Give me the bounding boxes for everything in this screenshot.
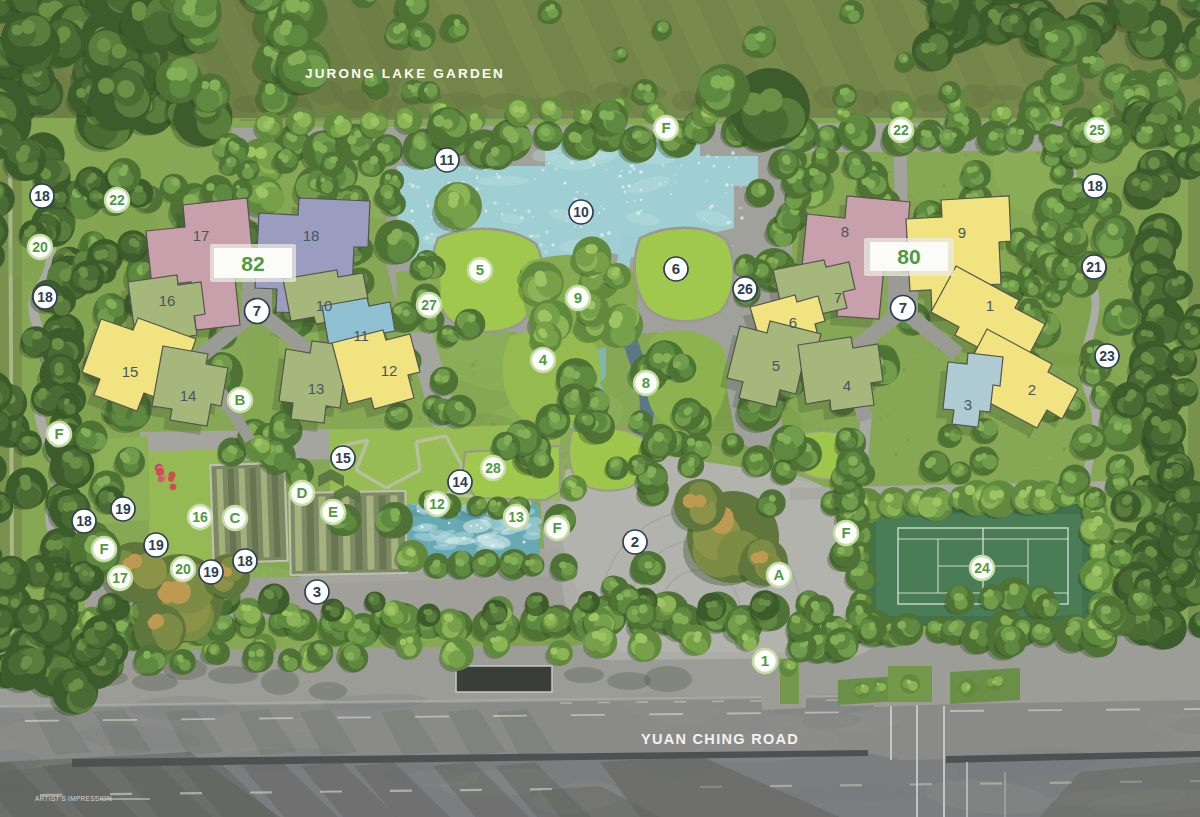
svg-text:15: 15 [122, 363, 139, 380]
svg-text:13: 13 [508, 509, 524, 525]
svg-text:10: 10 [573, 204, 589, 220]
svg-text:19: 19 [115, 501, 131, 517]
svg-text:16: 16 [159, 292, 176, 309]
svg-text:20: 20 [175, 561, 191, 577]
svg-text:11: 11 [440, 152, 455, 168]
svg-text:YUAN CHING ROAD: YUAN CHING ROAD [641, 731, 799, 747]
svg-text:4: 4 [843, 377, 851, 394]
svg-text:2: 2 [631, 533, 639, 550]
svg-text:B: B [235, 391, 246, 408]
svg-text:2: 2 [1028, 381, 1036, 398]
svg-text:F: F [552, 519, 561, 536]
svg-text:22: 22 [109, 192, 125, 208]
svg-text:19: 19 [148, 537, 164, 553]
svg-text:22: 22 [893, 122, 909, 138]
svg-text:9: 9 [574, 289, 582, 306]
svg-text:6: 6 [789, 314, 797, 331]
svg-text:18: 18 [237, 553, 253, 569]
svg-text:18: 18 [37, 289, 53, 305]
svg-text:14: 14 [180, 387, 197, 404]
svg-text:14: 14 [452, 474, 468, 490]
svg-text:18: 18 [1087, 178, 1103, 194]
svg-text:F: F [54, 425, 63, 442]
svg-text:3: 3 [313, 583, 321, 600]
svg-text:5: 5 [772, 357, 780, 374]
svg-text:A: A [774, 566, 785, 583]
svg-text:1: 1 [761, 652, 769, 669]
svg-text:82: 82 [241, 252, 264, 275]
svg-text:28: 28 [485, 460, 501, 476]
svg-text:C: C [230, 509, 241, 526]
svg-text:26: 26 [737, 281, 753, 297]
svg-text:6: 6 [672, 260, 680, 277]
svg-text:7: 7 [834, 289, 842, 306]
svg-text:F: F [99, 540, 108, 557]
svg-text:9: 9 [958, 224, 966, 241]
svg-text:18: 18 [76, 513, 92, 529]
svg-text:1: 1 [986, 297, 994, 314]
svg-text:17: 17 [112, 570, 128, 586]
svg-text:23: 23 [1099, 348, 1115, 364]
svg-text:11: 11 [353, 327, 369, 344]
svg-text:7: 7 [253, 302, 261, 319]
svg-text:5: 5 [476, 261, 484, 278]
svg-text:17: 17 [193, 227, 210, 244]
svg-text:8: 8 [841, 223, 849, 240]
svg-text:18: 18 [303, 227, 320, 244]
svg-text:13: 13 [308, 380, 325, 397]
svg-text:18: 18 [34, 188, 50, 204]
svg-text:20: 20 [32, 239, 48, 255]
svg-text:3: 3 [964, 396, 972, 413]
svg-text:19: 19 [203, 564, 219, 580]
svg-text:21: 21 [1086, 259, 1102, 275]
svg-text:16: 16 [192, 509, 208, 525]
svg-text:27: 27 [421, 297, 437, 313]
svg-text:4: 4 [539, 351, 548, 368]
svg-text:JURONG LAKE GARDEN: JURONG LAKE GARDEN [305, 66, 505, 81]
svg-text:12: 12 [429, 496, 445, 512]
svg-text:24: 24 [974, 560, 990, 576]
svg-text:7: 7 [899, 299, 907, 316]
svg-text:10: 10 [316, 297, 333, 314]
svg-text:D: D [297, 484, 308, 501]
svg-text:80: 80 [897, 245, 920, 268]
svg-text:F: F [661, 119, 670, 136]
svg-text:15: 15 [335, 450, 351, 466]
svg-text:8: 8 [642, 374, 650, 391]
svg-text:F: F [841, 524, 850, 541]
svg-text:25: 25 [1089, 122, 1105, 138]
svg-text:E: E [328, 503, 338, 520]
svg-text:12: 12 [381, 362, 398, 379]
